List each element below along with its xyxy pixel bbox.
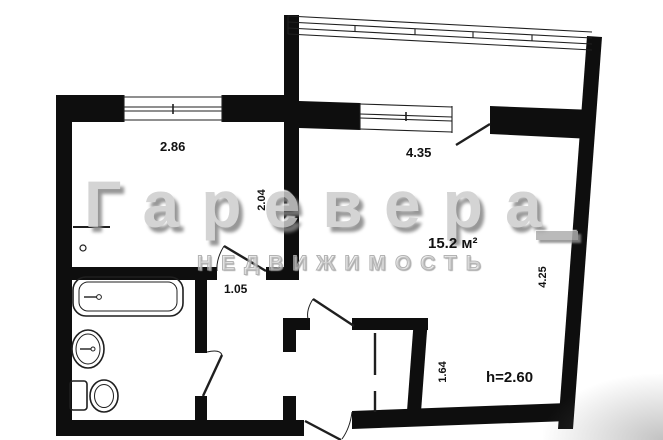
dim-label-hall-depth: 1.64	[431, 356, 455, 388]
balcony-glazing	[288, 16, 592, 50]
kitchen-window	[124, 95, 222, 122]
dim-label-kitchen-width: 2.86	[160, 139, 185, 154]
ceiling-height-label: h=2.60	[486, 369, 533, 386]
sink-icon	[72, 330, 104, 368]
wall-closet-right	[407, 318, 428, 412]
wall-main-top-a	[299, 101, 360, 130]
watermark-brand: Гаревера	[84, 166, 564, 242]
bathtub-icon	[73, 277, 183, 316]
floor-plan-scan: Гаревера НЕДВИЖИМОСТЬ 2.86 4.35 2.04 15.…	[0, 0, 663, 440]
watermark-subtitle: НЕДВИЖИМОСТЬ	[197, 252, 490, 276]
living-room-window	[360, 103, 452, 133]
wall-top-left-a	[56, 95, 124, 122]
dim-label-corridor-width: 1.05	[224, 282, 247, 296]
wall-bath-right-a	[195, 267, 207, 353]
dim-label-room-depth: 4.25	[531, 261, 555, 293]
dim-label-room-width: 4.35	[406, 145, 431, 160]
balcony-door	[456, 124, 490, 145]
dim-label-kitchen-depth: 2.04	[250, 184, 274, 216]
wall-outer-bottom-right	[352, 403, 568, 429]
room-area-label: 15.2 м²	[428, 235, 477, 252]
small-circle-mark	[80, 245, 86, 251]
wall-bath-right-b	[195, 396, 207, 422]
watermark-underscore	[536, 231, 578, 240]
scan-shadow	[543, 374, 663, 440]
wall-main-top-b	[490, 106, 594, 139]
entry-door	[305, 412, 352, 440]
bathroom-door	[203, 351, 222, 396]
wall-hall-door-stub	[283, 318, 310, 330]
wall-corridor-bottom	[283, 396, 296, 424]
toilet-icon	[70, 380, 118, 412]
living-room-door	[308, 299, 354, 326]
wall-outer-bottom-left	[56, 420, 304, 436]
